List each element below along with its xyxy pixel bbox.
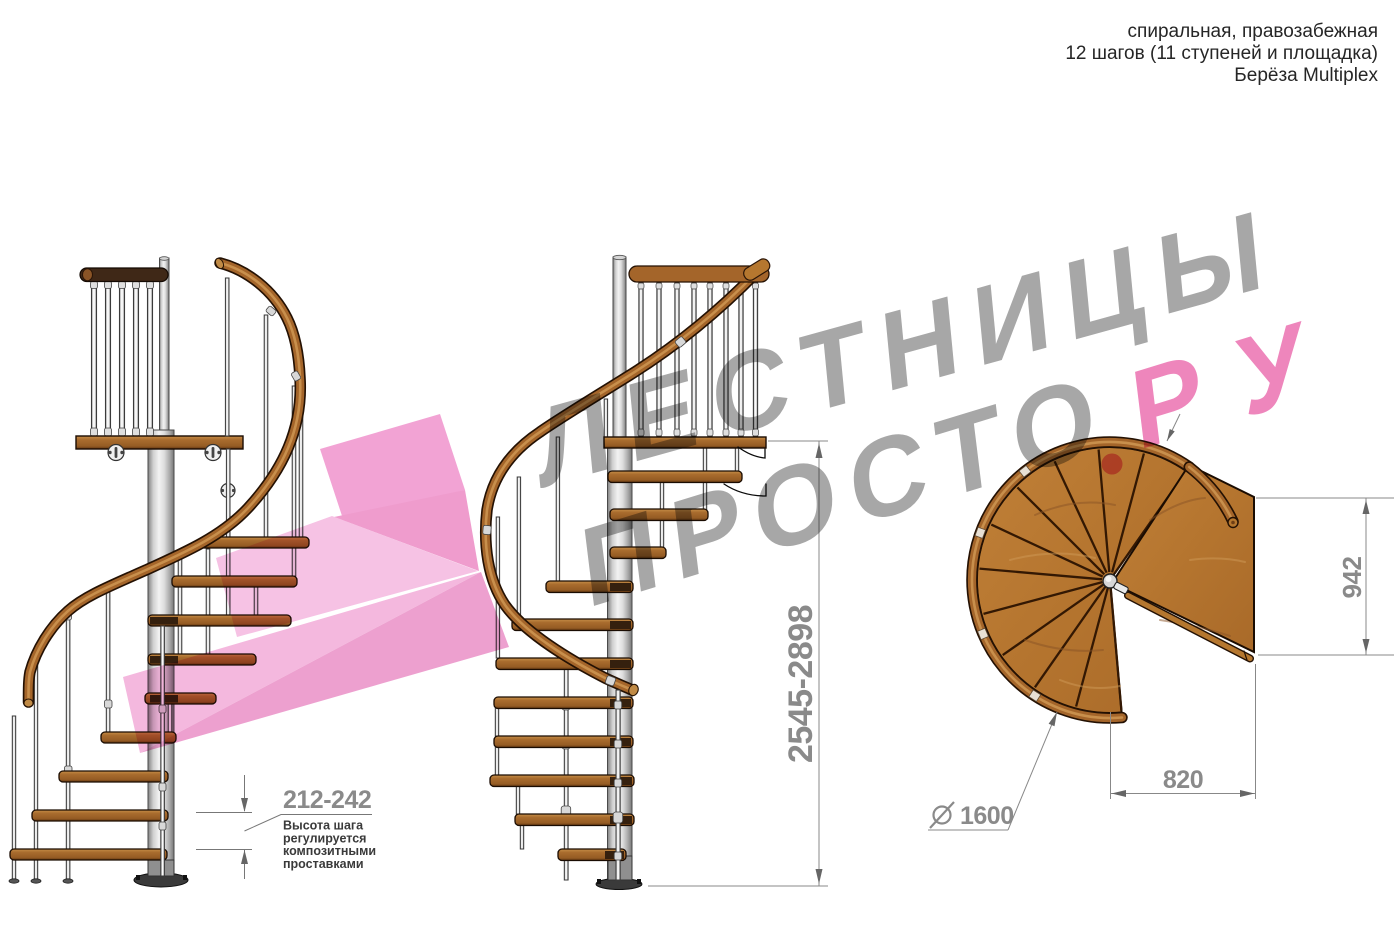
svg-text:Берёза Multiplex: Берёза Multiplex: [1234, 65, 1378, 86]
svg-text:2545-2898: 2545-2898: [782, 605, 820, 763]
svg-text:212-242: 212-242: [283, 786, 371, 814]
svg-text:проставками: проставками: [283, 857, 364, 871]
svg-text:942: 942: [1337, 557, 1367, 599]
svg-text:спиральная, правозабежная: спиральная, правозабежная: [1128, 21, 1378, 42]
svg-text:1600: 1600: [960, 802, 1014, 830]
svg-text:12 шагов (11 ступеней и площад: 12 шагов (11 ступеней и площадка): [1065, 43, 1378, 64]
svg-text:820: 820: [1163, 766, 1203, 794]
